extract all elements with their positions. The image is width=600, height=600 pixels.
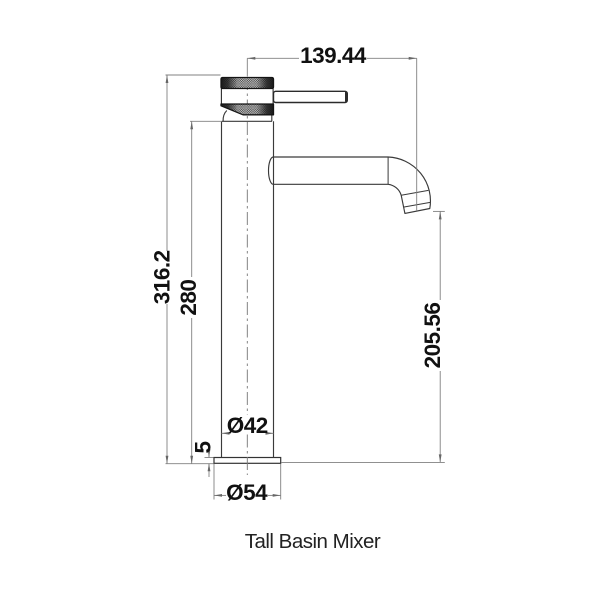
- svg-text:205.56: 205.56: [420, 303, 445, 369]
- svg-text:5: 5: [191, 441, 216, 453]
- svg-text:Tall Basin Mixer: Tall Basin Mixer: [245, 530, 381, 553]
- svg-text:280: 280: [176, 280, 201, 316]
- svg-text:316.2: 316.2: [149, 250, 174, 304]
- svg-text:139.44: 139.44: [300, 43, 367, 68]
- svg-text:Ø42: Ø42: [227, 413, 268, 438]
- svg-text:Ø54: Ø54: [226, 480, 268, 505]
